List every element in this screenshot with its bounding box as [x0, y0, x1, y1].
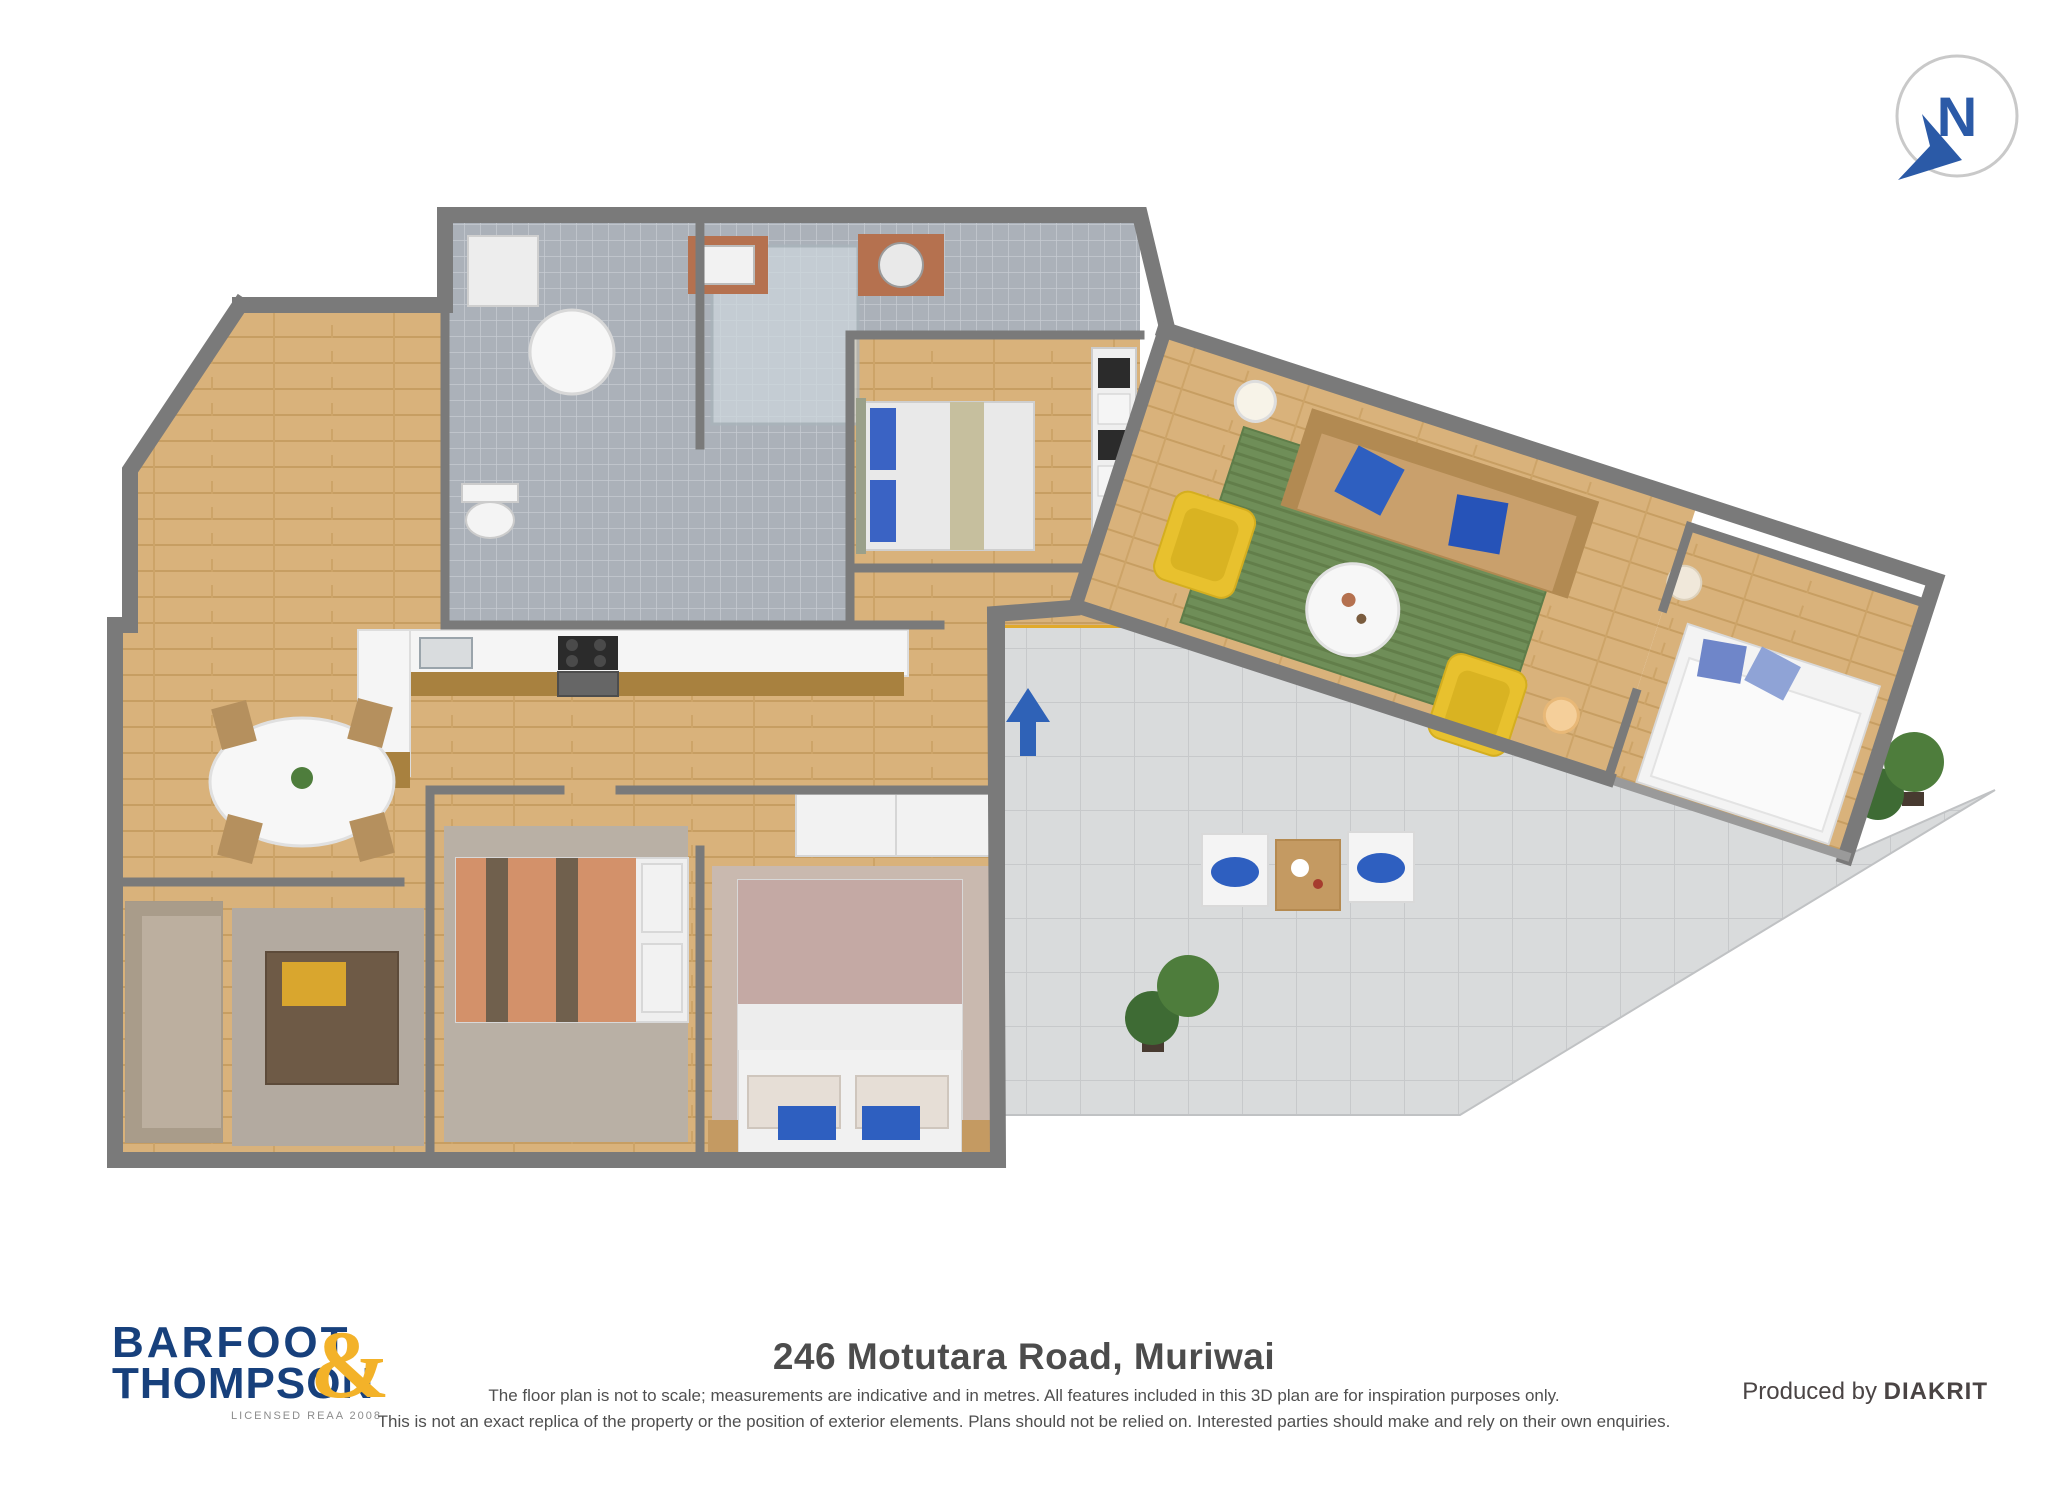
bedroom3-duvet	[738, 880, 962, 1010]
lounge-sofa-arm	[126, 1128, 222, 1142]
produced-prefix: Produced by	[1742, 1378, 1883, 1405]
cooktop-burner	[566, 655, 578, 667]
outdoor-chair-right-cushion	[1357, 853, 1405, 883]
bedside-table	[708, 1120, 738, 1154]
master-bed-headboard	[856, 398, 866, 554]
hanging-clothes	[1098, 394, 1130, 424]
cooktop-burner	[594, 655, 606, 667]
dining-centerpiece	[291, 767, 313, 789]
produced-by: Produced by DIAKRIT	[1742, 1378, 1988, 1406]
cooktop	[558, 636, 618, 670]
daybed-pillow	[1697, 639, 1747, 684]
disclaimer-line2: This is not an exact replica of the prop…	[0, 1412, 2048, 1432]
outdoor-chair-left-cushion	[1211, 857, 1259, 887]
toilet-bowl	[466, 502, 514, 538]
plant-pot	[1902, 792, 1924, 806]
floorplan-canvas: N	[0, 0, 2048, 1494]
lounge-sofa-arm	[126, 902, 222, 916]
washing-machine	[468, 236, 538, 306]
floorplan-root	[115, 215, 1995, 1160]
toilet-tank	[462, 484, 518, 502]
master-bed-runner	[950, 402, 984, 550]
bedroom2-pillow	[642, 864, 682, 932]
bedroom2-duvet-stripe	[486, 858, 508, 1022]
kitchen-cabinets	[362, 672, 904, 696]
vanity-basin	[702, 246, 754, 284]
disclaimer-line1: The floor plan is not to scale; measurem…	[0, 1386, 2048, 1406]
bedroom3-pillow-blue	[778, 1106, 836, 1140]
bedroom2-duvet-stripe	[556, 858, 578, 1022]
bedroom3-duvet-fold	[738, 1004, 962, 1050]
hot-water-cylinder	[530, 310, 614, 394]
oven	[558, 672, 618, 696]
potted-plant	[1884, 732, 1944, 792]
sofa-pillow-blue	[1448, 494, 1508, 554]
bedroom2-duvet	[456, 858, 636, 1022]
floorplan-page: N BARFOOT THOMPSON & LICENSED REAA 2008 …	[0, 0, 2048, 1494]
cooktop-burner	[566, 639, 578, 651]
potted-plant	[1157, 955, 1219, 1017]
bedroom3-pillow-blue	[862, 1106, 920, 1140]
bedside-table	[962, 1120, 992, 1154]
lounge-sofa-back	[126, 902, 142, 1142]
lounge-tray	[282, 962, 346, 1006]
kitchen-sink	[420, 638, 472, 668]
hall-floor	[130, 305, 445, 625]
bedroom2-pillow	[642, 944, 682, 1012]
outdoor-table	[1276, 840, 1340, 910]
master-bed-pillow-blue	[870, 480, 896, 542]
cooktop-burner	[594, 639, 606, 651]
compass: N	[1897, 56, 2017, 180]
produced-brand: DIAKRIT	[1884, 1378, 1988, 1405]
property-address: 246 Motutara Road, Muriwai	[0, 1336, 2048, 1378]
outdoor-table-plate	[1291, 859, 1309, 877]
round-basin	[879, 243, 923, 287]
outdoor-table-cup	[1313, 879, 1323, 889]
master-bed-pillow-blue	[870, 408, 896, 470]
hanging-clothes	[1098, 358, 1130, 388]
